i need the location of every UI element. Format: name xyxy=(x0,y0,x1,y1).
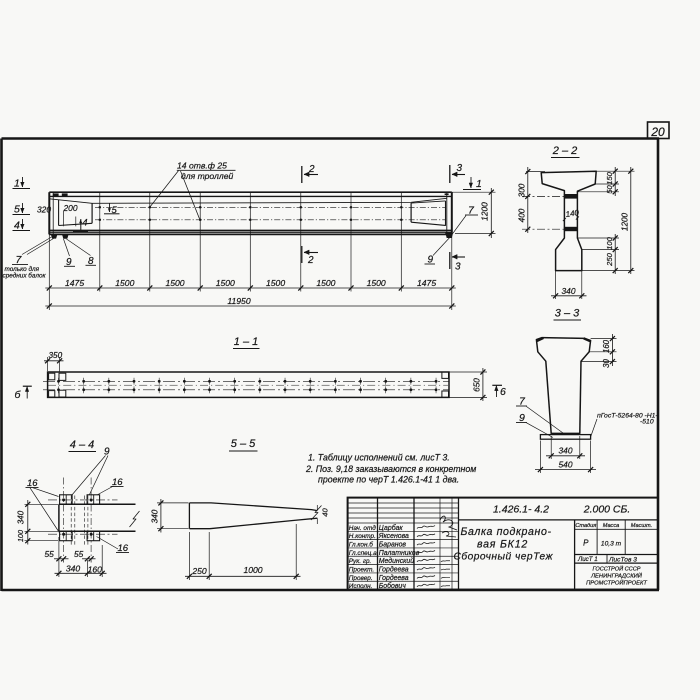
svg-text:11950: 11950 xyxy=(227,296,250,306)
svg-text:4: 4 xyxy=(82,218,87,229)
svg-text:Масса: Масса xyxy=(603,523,620,529)
svg-text:Гордеева: Гордеева xyxy=(379,566,409,574)
svg-text:40: 40 xyxy=(321,508,330,517)
svg-text:300: 300 xyxy=(518,183,527,197)
svg-text:4 – 4: 4 – 4 xyxy=(70,439,94,451)
svg-text:1475: 1475 xyxy=(65,278,84,288)
svg-text:2. Поз. 9,18 заказываются в ко: 2. Поз. 9,18 заказываются в конкретном xyxy=(305,464,476,474)
svg-text:200: 200 xyxy=(63,203,78,213)
svg-text:Баранов: Баранов xyxy=(379,542,407,549)
svg-text:320: 320 xyxy=(37,205,51,215)
svg-text:340: 340 xyxy=(151,509,160,523)
svg-text:1200: 1200 xyxy=(621,212,630,231)
svg-text:1500: 1500 xyxy=(367,278,386,288)
svg-text:1200: 1200 xyxy=(480,202,490,221)
svg-text:Проект.: Проект. xyxy=(349,567,374,574)
svg-text:Рук. гр.: Рук. гр. xyxy=(349,558,372,565)
svg-text:Масшт.: Масшт. xyxy=(631,523,652,529)
svg-text:ЛисТ 1: ЛисТ 1 xyxy=(577,556,598,563)
svg-text:100: 100 xyxy=(605,236,614,249)
svg-text:1: 1 xyxy=(14,178,20,190)
svg-text:250: 250 xyxy=(605,252,614,266)
svg-text:-510: -510 xyxy=(640,419,654,426)
svg-text:55: 55 xyxy=(45,549,55,559)
svg-text:2: 2 xyxy=(308,164,315,175)
svg-text:20: 20 xyxy=(650,125,665,139)
svg-text:Сборочный черТеж: Сборочный черТеж xyxy=(454,551,554,563)
svg-text:вая БК12: вая БК12 xyxy=(477,539,528,551)
svg-text:Балка подкрано-: Балка подкрано- xyxy=(461,526,552,538)
svg-text:2 – 2: 2 – 2 xyxy=(552,145,577,157)
svg-text:10,3 т: 10,3 т xyxy=(601,541,622,548)
svg-text:Н.контр.: Н.контр. xyxy=(349,533,376,540)
svg-text:ЛЕНИНГРАДСКИЙ: ЛЕНИНГРАДСКИЙ xyxy=(590,572,643,580)
svg-text:Царбак: Царбак xyxy=(379,524,404,532)
svg-text:160: 160 xyxy=(602,339,611,353)
svg-text:1. Таблицу исполнений см. лис: 1. Таблицу исполнений см. лисТ 3. xyxy=(308,453,450,463)
svg-text:Р: Р xyxy=(583,539,589,548)
svg-text:1500: 1500 xyxy=(216,278,235,288)
svg-text:30: 30 xyxy=(602,359,611,368)
svg-text:Стадия: Стадия xyxy=(575,523,596,529)
svg-text:340: 340 xyxy=(562,286,576,296)
svg-text:ПРОМСТРОЙПРОЕКТ: ПРОМСТРОЙПРОЕКТ xyxy=(586,579,647,587)
svg-text:1500: 1500 xyxy=(115,278,134,288)
svg-text:350: 350 xyxy=(49,351,63,360)
svg-text:3: 3 xyxy=(457,163,463,174)
svg-text:ЛисТов 3: ЛисТов 3 xyxy=(608,556,637,563)
svg-text:5 – 5: 5 – 5 xyxy=(231,438,256,450)
svg-text:340: 340 xyxy=(559,446,573,456)
svg-text:Мединский: Мединский xyxy=(379,557,414,565)
svg-text:Гл.кон.б: Гл.кон.б xyxy=(349,541,373,549)
svg-text:1 – 1: 1 – 1 xyxy=(234,336,258,348)
svg-text:4: 4 xyxy=(14,220,20,232)
svg-text:55: 55 xyxy=(74,549,84,559)
svg-text:2.000 СБ.: 2.000 СБ. xyxy=(583,504,631,516)
svg-text:150: 150 xyxy=(605,171,614,184)
svg-text:250: 250 xyxy=(191,566,207,576)
svg-text:ГОССТРОЙ СССР: ГОССТРОЙ СССР xyxy=(592,565,640,573)
svg-text:14 отв.ф 25: 14 отв.ф 25 xyxy=(177,161,227,171)
svg-text:Гордеева: Гордеева xyxy=(379,574,409,582)
svg-text:1500: 1500 xyxy=(266,278,285,288)
svg-text:160: 160 xyxy=(88,565,103,575)
svg-text:3: 3 xyxy=(455,262,461,273)
svg-text:1475: 1475 xyxy=(417,278,436,288)
svg-text:Исполн.: Исполн. xyxy=(349,583,373,590)
svg-text:1.426.1- 4.2: 1.426.1- 4.2 xyxy=(493,504,549,516)
svg-text:Палатников: Палатников xyxy=(379,550,420,557)
svg-text:650: 650 xyxy=(473,378,482,392)
svg-text:50: 50 xyxy=(605,185,614,194)
svg-text:Гл.спец.а: Гл.спец.а xyxy=(349,550,377,557)
svg-text:1500: 1500 xyxy=(316,278,335,288)
svg-text:Бобович: Бобович xyxy=(379,582,406,590)
svg-text:400: 400 xyxy=(518,208,527,222)
svg-text:3 – 3: 3 – 3 xyxy=(555,308,580,320)
svg-text:Яксенова: Яксенова xyxy=(378,533,409,540)
svg-text:1500: 1500 xyxy=(165,278,184,288)
svg-text:6: 6 xyxy=(500,386,506,398)
svg-text:1000: 1000 xyxy=(243,565,262,575)
svg-text:проекте по черТ 1.426.1-41 1 д: проекте по черТ 1.426.1-41 1 два. xyxy=(318,474,459,484)
svg-text:5: 5 xyxy=(14,204,20,216)
svg-text:100: 100 xyxy=(16,529,25,542)
svg-text:Нач. отд: Нач. отд xyxy=(349,524,376,532)
svg-text:5: 5 xyxy=(112,205,118,216)
svg-text:Провер.: Провер. xyxy=(349,575,373,582)
svg-text:средних балок: средних балок xyxy=(3,272,47,280)
svg-text:340: 340 xyxy=(66,564,81,574)
svg-text:для троллей: для троллей xyxy=(181,171,233,181)
svg-text:340: 340 xyxy=(17,510,26,524)
svg-text:2: 2 xyxy=(307,255,314,266)
svg-text:1: 1 xyxy=(476,178,482,190)
svg-text:540: 540 xyxy=(559,459,573,469)
